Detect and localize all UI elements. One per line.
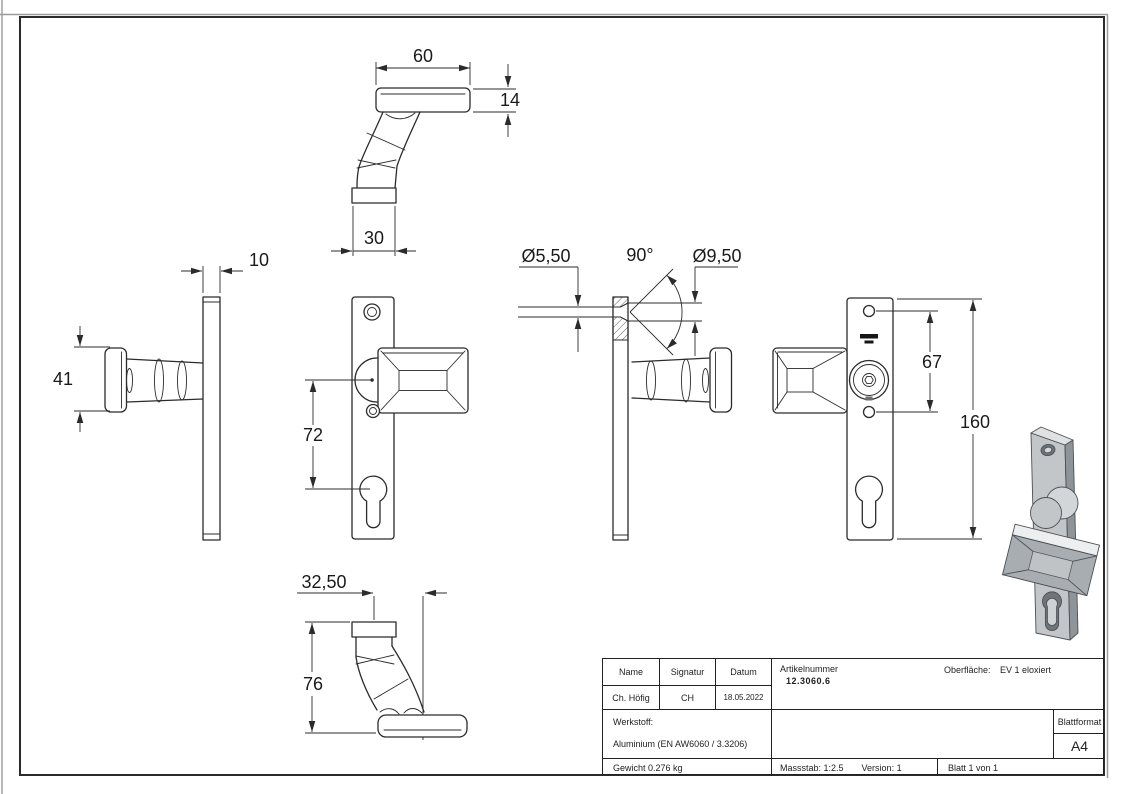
dim-handle-to-cylinder: 72 [303, 425, 323, 445]
datum-value-cell: 18.05.2022 [716, 686, 772, 710]
dim-top-width: 60 [413, 46, 433, 66]
werkstoff-cell: Werkstoff: Aluminium (EN AW6060 / 3.3206… [603, 710, 772, 759]
dim-top-base: 30 [364, 228, 384, 248]
dim-plate-height: 160 [960, 412, 990, 432]
dim-hole-spacing: 67 [922, 352, 942, 372]
signatur-label: Signatur [671, 667, 705, 677]
datum-label: Datum [730, 667, 757, 677]
dim-plate-thickness: 10 [249, 250, 269, 270]
name-value: Ch. Höfig [612, 693, 650, 703]
massstab-value: Massstab: 1:2.5 [780, 763, 844, 773]
signatur-value: CH [681, 693, 694, 703]
top-view: 60 14 30 [331, 46, 520, 256]
oberflaeche-value: EV 1 eloxiert [1000, 665, 1051, 675]
gewicht-value: Gewicht 0.276 kg [613, 763, 683, 773]
artikelnummer-label: Artikelnummer [780, 664, 838, 674]
empty-cell [772, 710, 1054, 759]
left-side-view: 10 41 [53, 250, 269, 540]
datum-label-cell: Datum [716, 659, 772, 686]
dim-countersink-diameter: Ø9,50 [692, 246, 741, 266]
name-label-cell: Name [603, 659, 660, 686]
massstab-cell: Massstab: 1:2.5 Version: 1 [772, 759, 938, 776]
dim-countersink-angle: 90° [626, 245, 653, 265]
blatt-cell: Blatt 1 von 1 [938, 759, 1105, 776]
iso-view [1003, 427, 1100, 640]
blattformat-value-cell: A4 [1054, 734, 1105, 759]
werkstoff-value: Aluminium (EN AW6060 / 3.3206) [613, 739, 747, 749]
iso-keyhole [1043, 592, 1062, 631]
dim-grip-height: 41 [53, 369, 73, 389]
dim-top-thickness: 14 [500, 90, 520, 110]
blattformat-label: Blattformat [1058, 717, 1102, 727]
werkstoff-label: Werkstoff: [613, 717, 653, 727]
datum-value: 18.05.2022 [723, 693, 763, 702]
oberflaeche-label: Oberfläche: [944, 665, 991, 675]
front-view: 72 [303, 297, 468, 539]
bottom-view: 32,50 76 [297, 572, 467, 740]
gewicht-cell: Gewicht 0.276 kg [603, 759, 772, 776]
iso-knob-rosette [1031, 498, 1062, 529]
dim-overall-depth: 76 [303, 674, 323, 694]
signatur-value-cell: CH [660, 686, 716, 710]
blatt-value: Blatt 1 von 1 [948, 763, 998, 773]
name-value-cell: Ch. Höfig [603, 686, 660, 710]
title-block: Name Signatur Datum Artikelnummer 12.306… [602, 658, 1104, 775]
dim-bore-diameter: Ø5,50 [521, 246, 570, 266]
drawing-sheet: 60 14 30 10 [0, 0, 1123, 794]
engraved-logo-mark [860, 334, 878, 339]
blattformat-value: A4 [1071, 738, 1088, 754]
iso-grip [1003, 524, 1100, 596]
artikelnummer-cell: Artikelnummer 12.3060.6 Oberfläche: EV 1… [772, 659, 1105, 710]
name-label: Name [619, 667, 643, 677]
section-view: Ø5,50 90° Ø9,50 [518, 245, 742, 540]
back-view: 67 160 [773, 298, 990, 540]
dim-grip-offset: 32,50 [301, 572, 346, 592]
blattformat-label-cell: Blattformat [1054, 710, 1105, 734]
signatur-label-cell: Signatur [660, 659, 716, 686]
version-value: Version: 1 [862, 763, 902, 773]
artikelnummer-value: 12.3060.6 [786, 676, 831, 686]
